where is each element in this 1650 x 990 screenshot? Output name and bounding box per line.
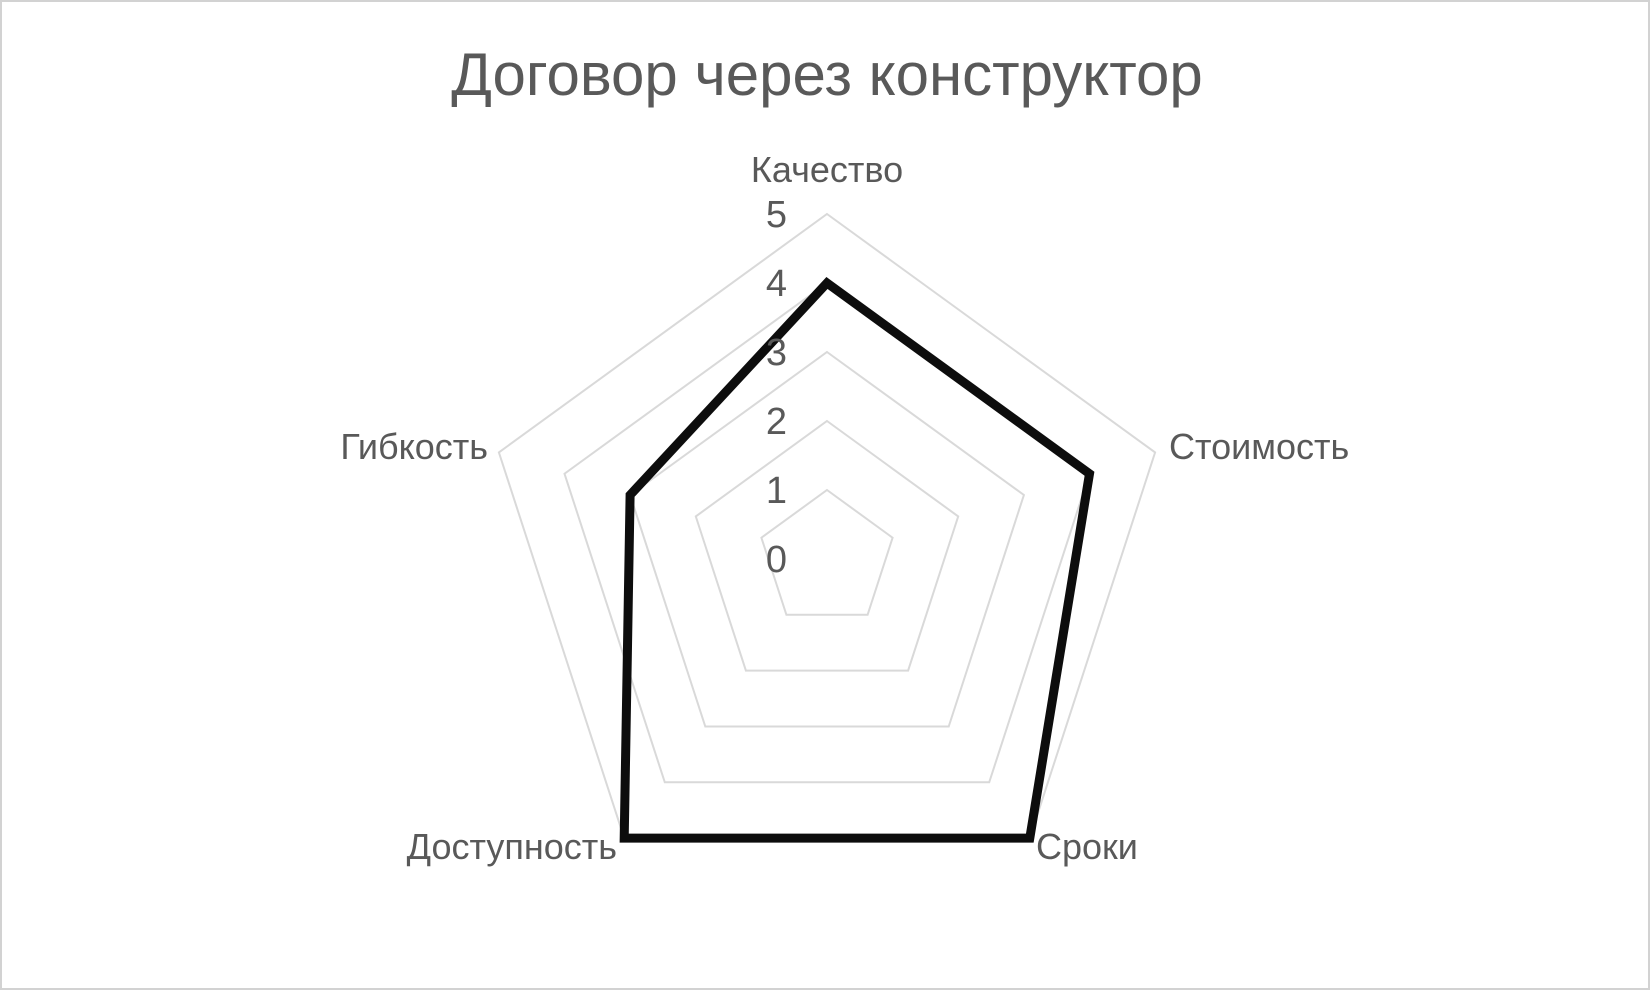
tick-label: 5 — [766, 194, 787, 236]
axis-label: Стоимость — [1169, 426, 1349, 467]
gridline-ring — [696, 421, 958, 671]
chart-canvas: Договор через конструктор 012345Качество… — [0, 0, 1650, 990]
tick-label: 1 — [766, 470, 787, 512]
tick-label: 4 — [766, 263, 787, 305]
tick-label: 2 — [766, 401, 787, 443]
axis-label: Доступность — [407, 826, 617, 867]
axis-label: Сроки — [1036, 826, 1138, 867]
data-polygon — [624, 283, 1089, 838]
tick-label: 0 — [766, 539, 787, 581]
radar-chart: 012345КачествоСтоимостьСрокиДоступностьГ… — [2, 2, 1650, 990]
axis-label: Качество — [751, 149, 903, 190]
gridline-ring — [499, 214, 1155, 838]
tick-label: 3 — [766, 332, 787, 374]
axis-label: Гибкость — [340, 426, 488, 467]
